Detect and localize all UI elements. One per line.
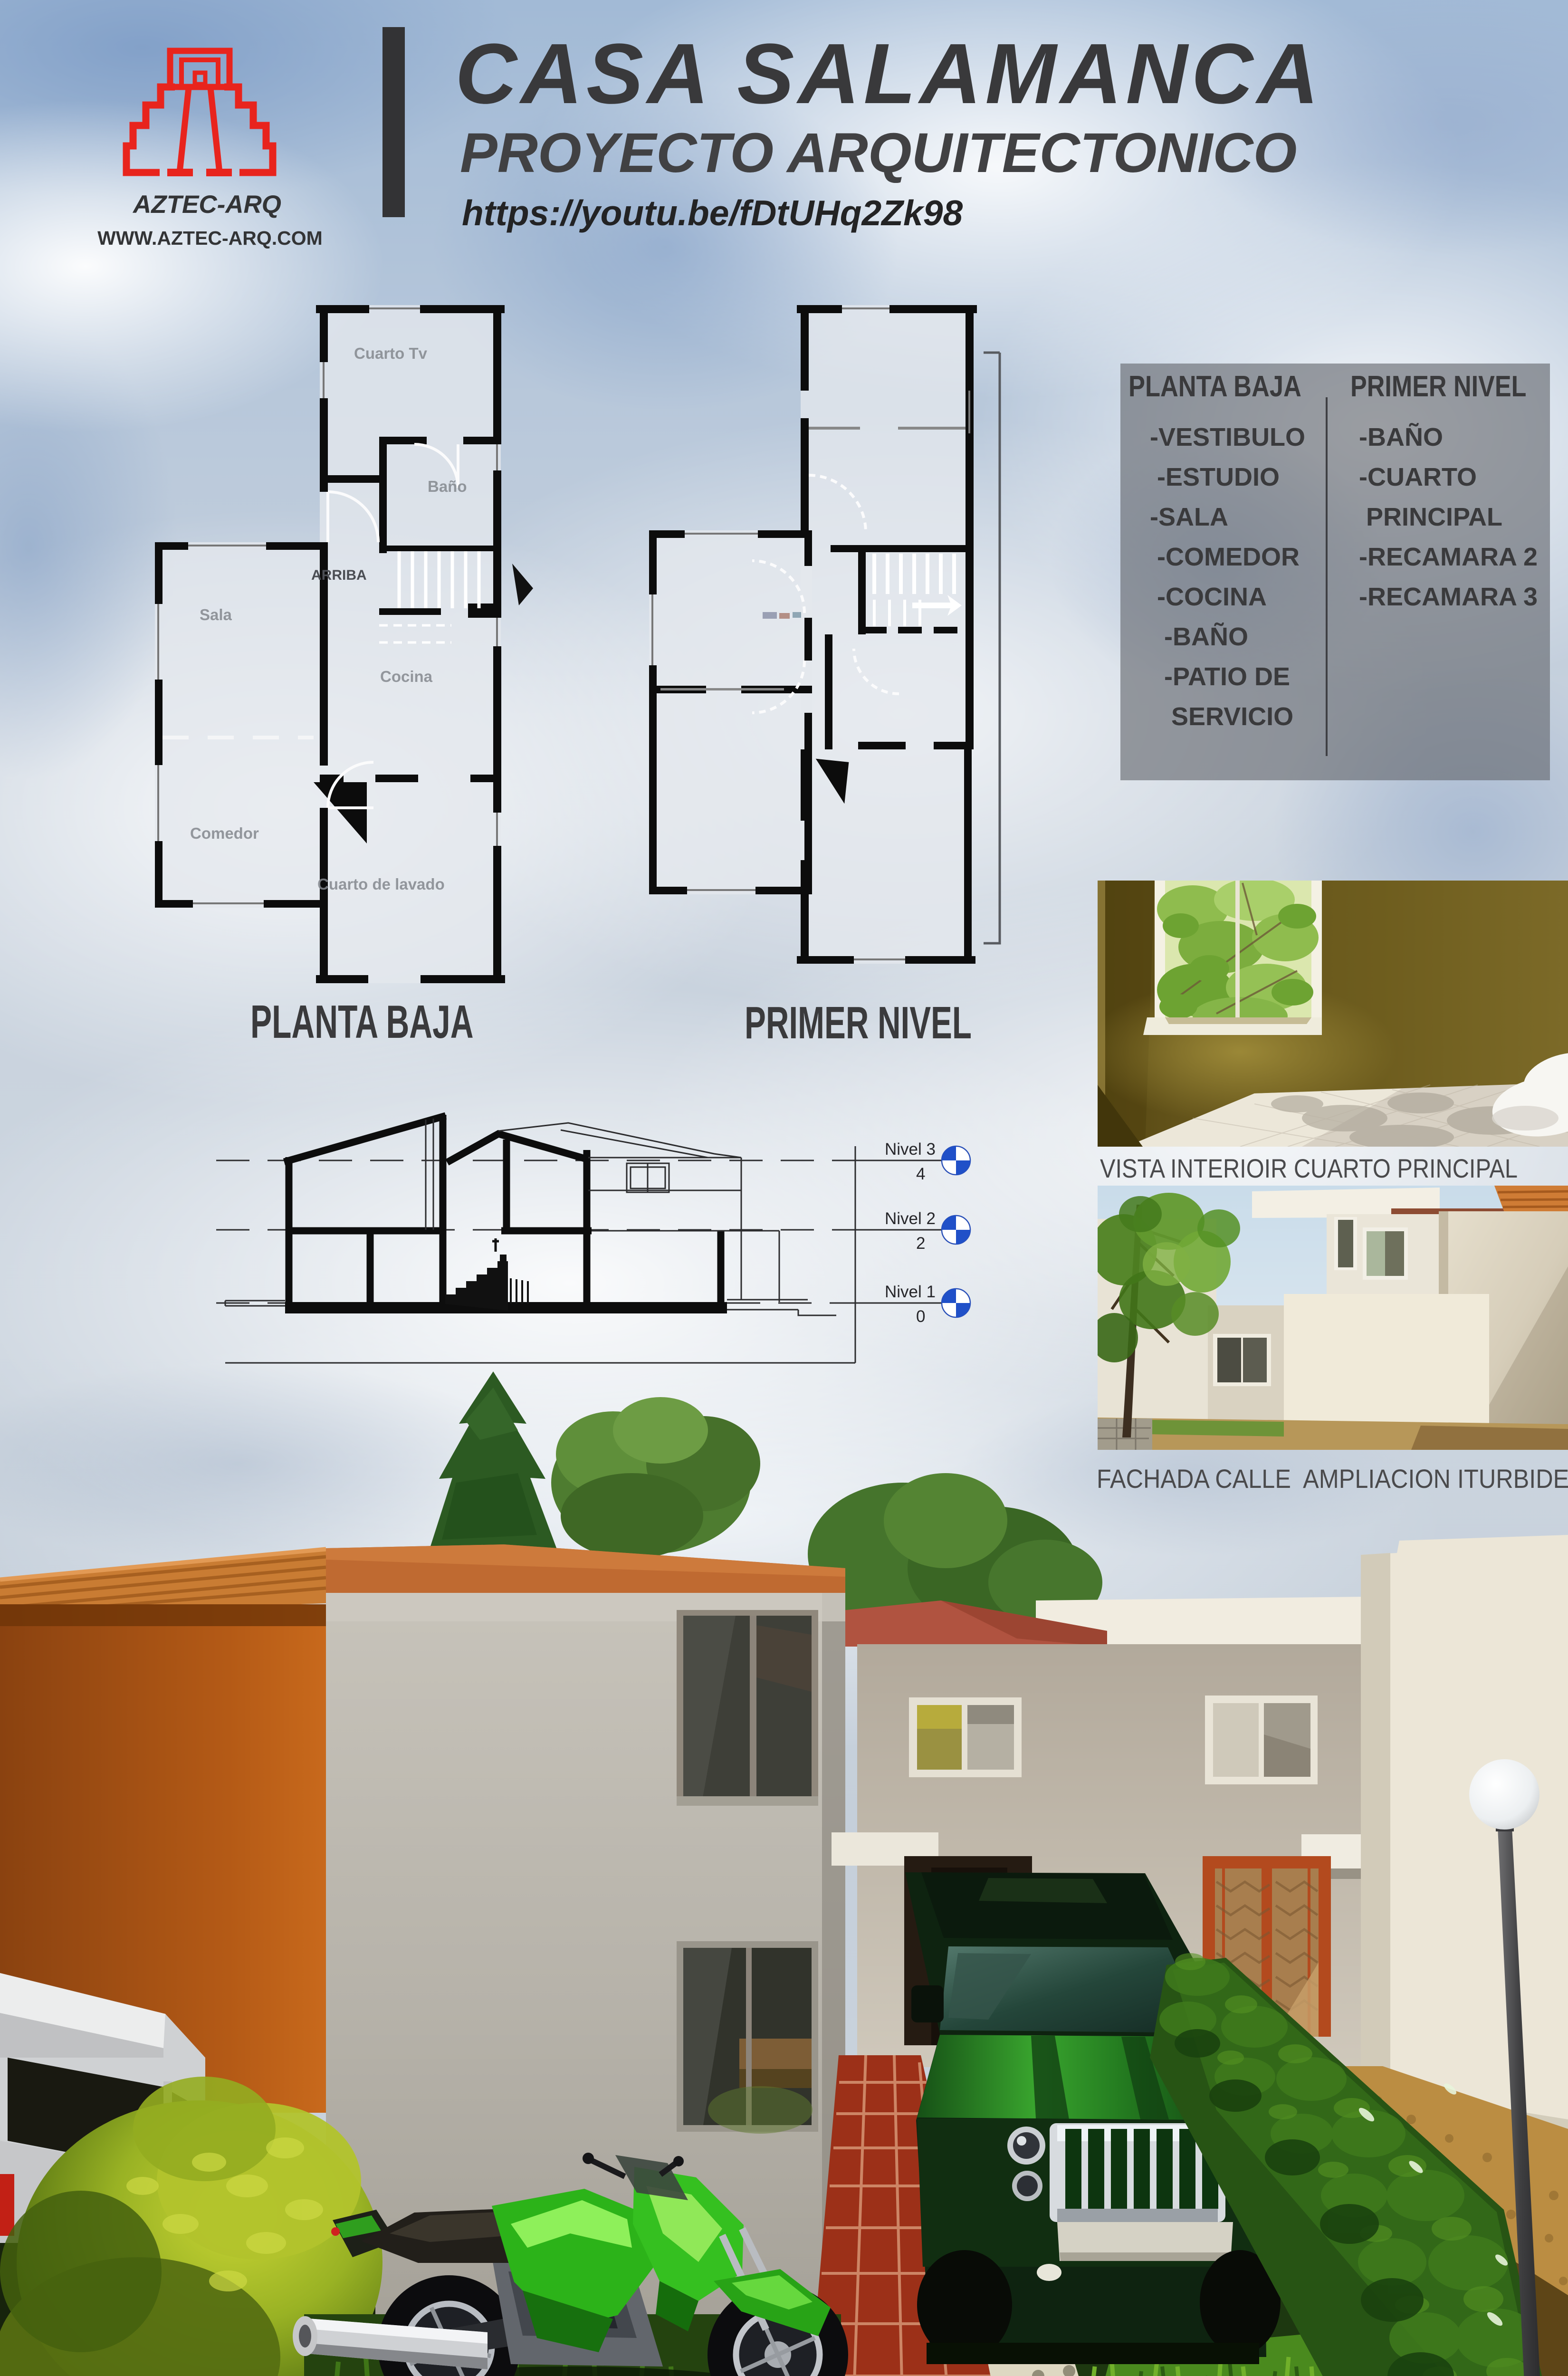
svg-text:Baño: Baño [428,478,467,495]
svg-text:4: 4 [916,1165,925,1183]
svg-text:0: 0 [916,1307,925,1326]
svg-text:2: 2 [916,1234,925,1253]
svg-text:Nivel 3: Nivel 3 [885,1140,936,1159]
svg-text:Cuarto Tv: Cuarto Tv [354,345,428,362]
svg-text:Sala: Sala [200,606,232,623]
svg-text:Comedor: Comedor [190,824,259,842]
svg-text:ARRIBA: ARRIBA [311,567,367,583]
svg-text:Nivel 2: Nivel 2 [885,1209,936,1228]
svg-text:Nivel 1: Nivel 1 [885,1283,936,1301]
svg-text:Cuarto de lavado: Cuarto de lavado [317,875,445,893]
svg-text:Cocina: Cocina [380,668,433,685]
